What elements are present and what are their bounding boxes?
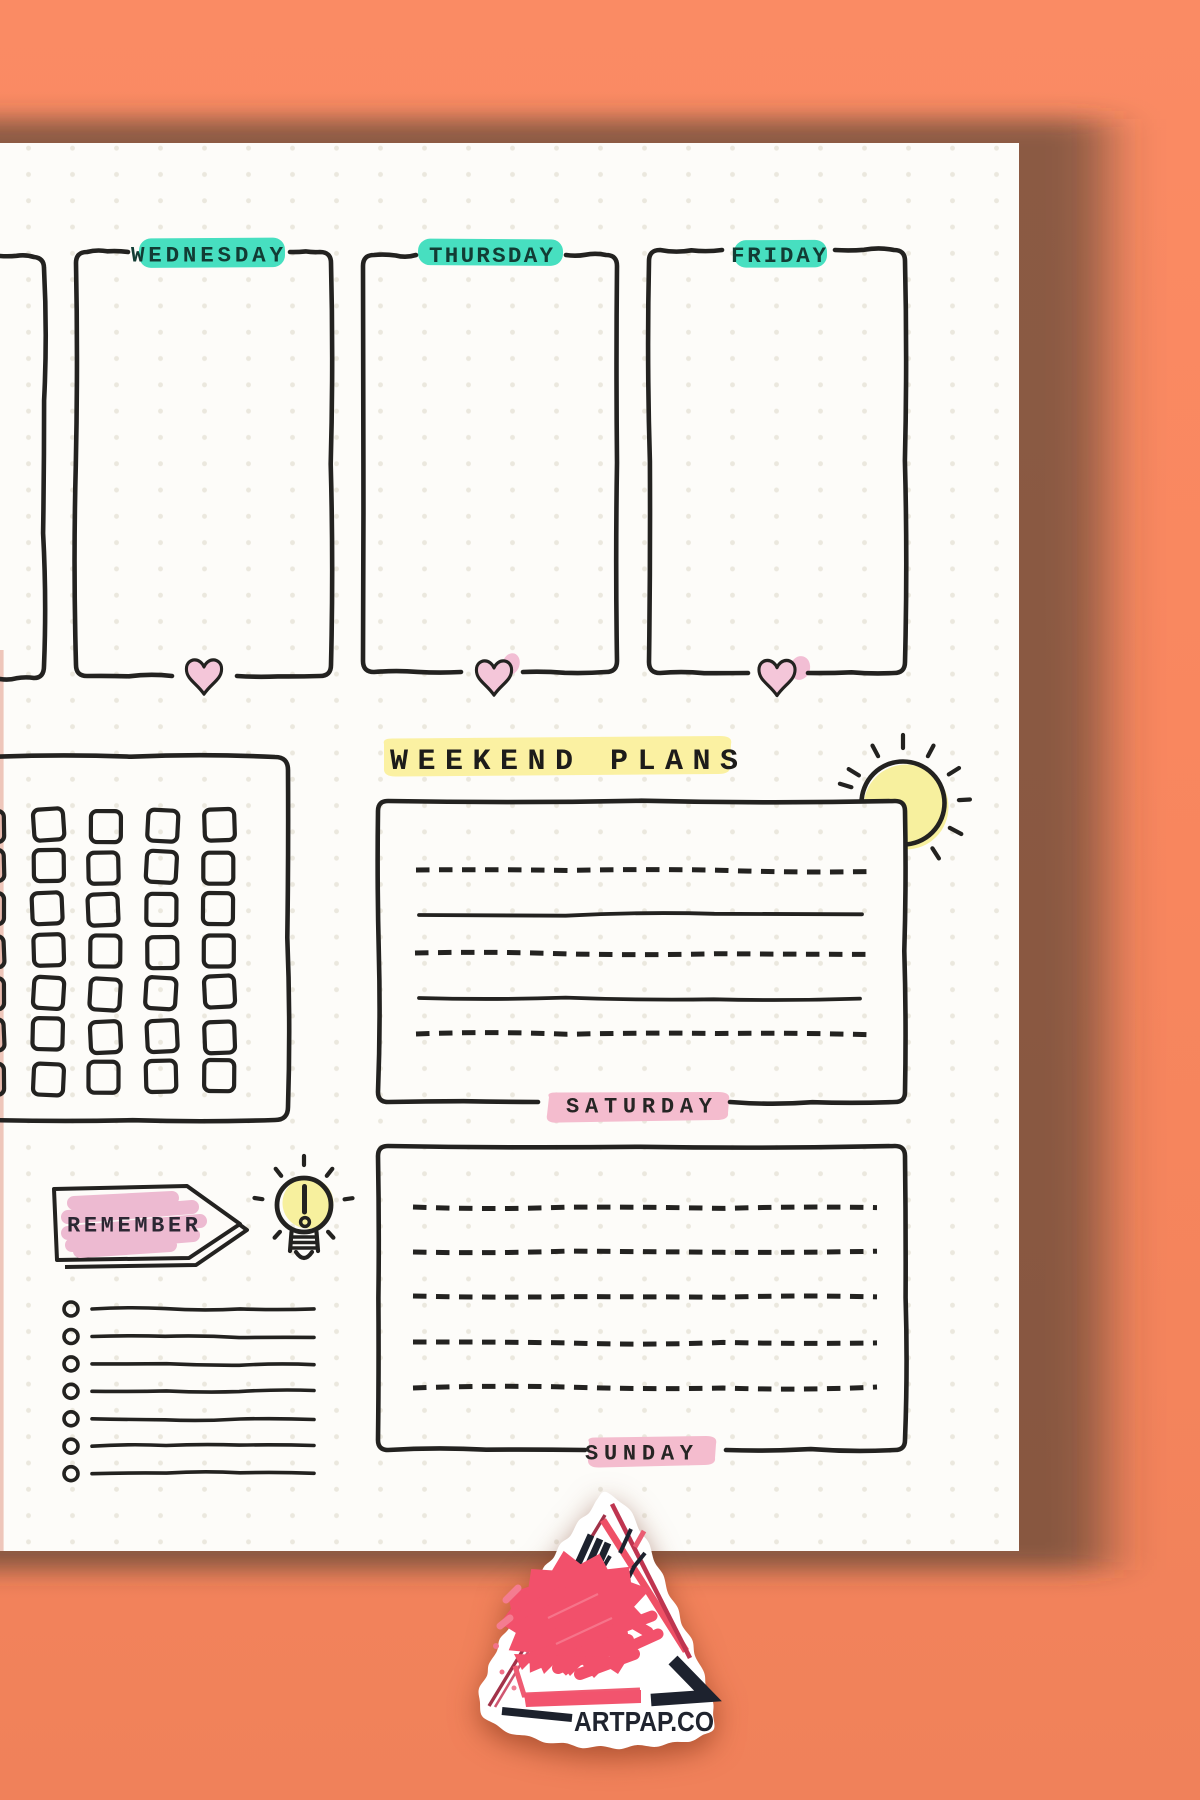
svg-text:WEDNESDAY: WEDNESDAY [131, 243, 283, 269]
svg-text:ARTPAP.CO: ARTPAP.CO [574, 1706, 714, 1737]
svg-text:THURSDAY: THURSDAY [429, 243, 553, 269]
